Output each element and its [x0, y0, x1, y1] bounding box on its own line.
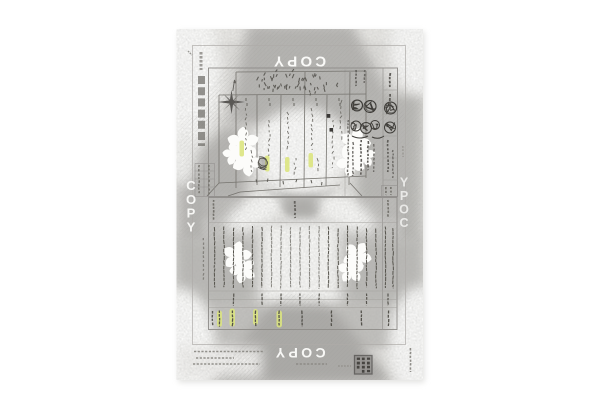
- svg-text:COPY: COPY: [271, 53, 326, 70]
- svg-text:Y: Y: [187, 220, 196, 235]
- svg-text:O: O: [399, 203, 409, 217]
- svg-text:COPY: COPY: [272, 345, 325, 361]
- svg-text:Y: Y: [400, 176, 409, 190]
- svg-text:P: P: [187, 206, 196, 221]
- svg-text:C: C: [186, 178, 196, 193]
- svg-text:P: P: [400, 189, 408, 203]
- svg-text:C: C: [399, 216, 408, 230]
